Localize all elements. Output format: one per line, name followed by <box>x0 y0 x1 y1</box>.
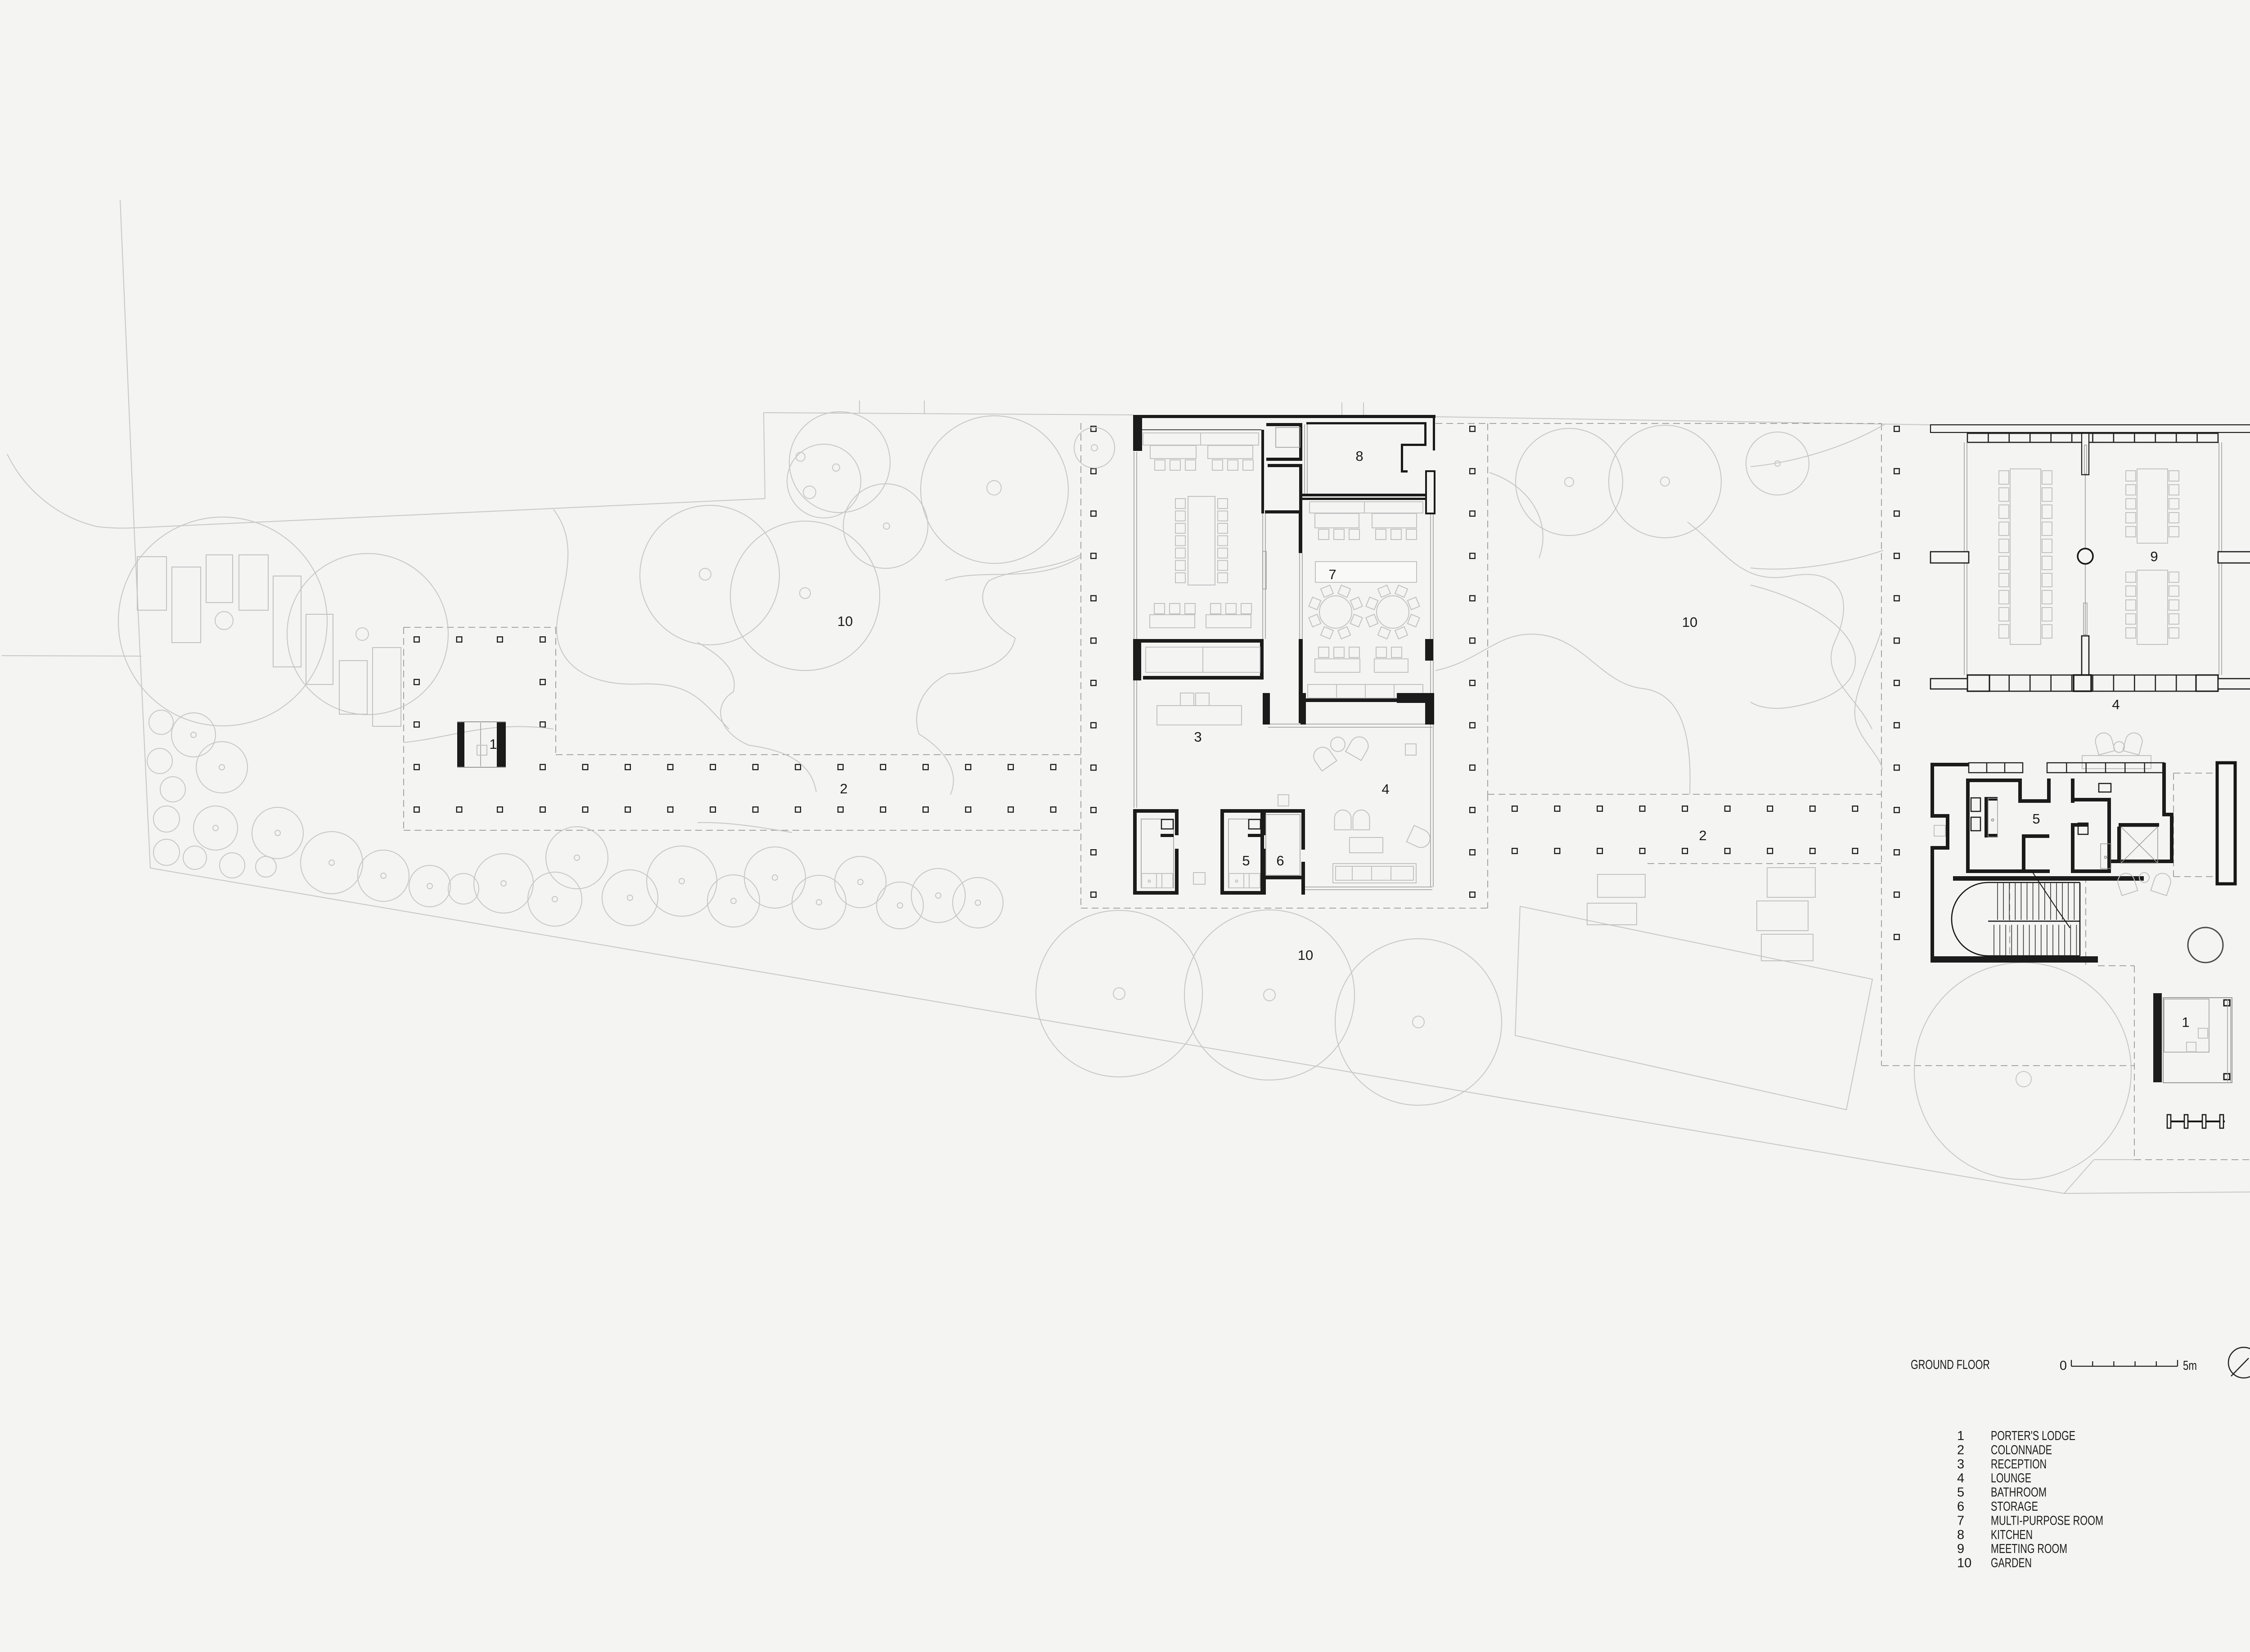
svg-text:4: 4 <box>2112 697 2119 712</box>
svg-text:6: 6 <box>1276 853 1284 869</box>
svg-text:8: 8 <box>1957 1528 1964 1542</box>
svg-text:RECEPTION: RECEPTION <box>1991 1457 2047 1472</box>
svg-text:5m: 5m <box>2183 1359 2197 1373</box>
svg-text:1: 1 <box>2182 1014 2189 1030</box>
svg-text:2: 2 <box>1957 1443 1964 1457</box>
svg-text:9: 9 <box>1957 1542 1964 1556</box>
svg-text:10: 10 <box>1298 947 1313 963</box>
svg-text:10: 10 <box>1957 1556 1971 1571</box>
svg-text:3: 3 <box>1194 729 1201 745</box>
svg-text:BATHROOM: BATHROOM <box>1991 1485 2047 1500</box>
svg-text:5: 5 <box>2032 811 2040 827</box>
svg-text:4: 4 <box>1957 1471 1964 1485</box>
svg-text:7: 7 <box>1957 1513 1964 1528</box>
svg-text:MULTI-PURPOSE ROOM: MULTI-PURPOSE ROOM <box>1991 1513 2103 1528</box>
svg-text:COLONNADE: COLONNADE <box>1991 1443 2052 1457</box>
svg-text:STORAGE: STORAGE <box>1991 1499 2038 1514</box>
svg-text:0: 0 <box>2060 1359 2067 1373</box>
svg-text:PORTER'S LODGE: PORTER'S LODGE <box>1991 1429 2075 1443</box>
svg-text:LOUNGE: LOUNGE <box>1991 1471 2031 1485</box>
svg-text:2: 2 <box>1699 828 1706 843</box>
svg-text:6: 6 <box>1957 1499 1964 1514</box>
svg-text:8: 8 <box>1355 448 1363 464</box>
svg-text:KITCHEN: KITCHEN <box>1991 1528 2033 1542</box>
svg-text:MEETING ROOM: MEETING ROOM <box>1991 1542 2067 1556</box>
svg-text:GARDEN: GARDEN <box>1991 1556 2032 1571</box>
svg-text:1: 1 <box>1957 1429 1964 1443</box>
svg-text:5: 5 <box>1957 1485 1964 1500</box>
svg-text:9: 9 <box>2150 549 2158 564</box>
svg-text:10: 10 <box>837 613 853 629</box>
svg-text:5: 5 <box>1242 853 1250 869</box>
svg-text:10: 10 <box>1682 614 1697 630</box>
svg-text:4: 4 <box>1381 781 1389 797</box>
svg-text:7: 7 <box>1328 567 1336 582</box>
svg-text:3: 3 <box>1957 1457 1964 1472</box>
svg-text:1: 1 <box>489 736 497 752</box>
svg-text:GROUND FLOOR: GROUND FLOOR <box>1911 1358 1990 1372</box>
svg-text:2: 2 <box>840 781 847 797</box>
